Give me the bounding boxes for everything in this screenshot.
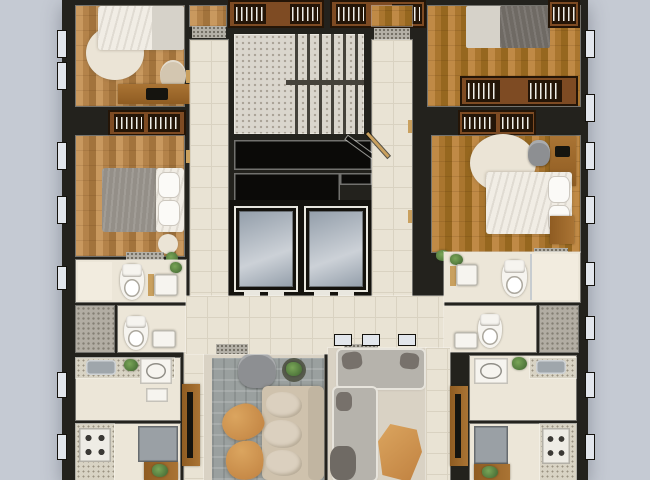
hanger-rail-icon [552, 4, 576, 24]
bed-sheet [466, 6, 502, 48]
corridor-right-vestibule [372, 6, 412, 26]
toilet [120, 264, 144, 300]
stove [542, 428, 570, 464]
hanger-rail-icon [466, 80, 500, 102]
hanger-rail-icon [462, 114, 496, 132]
tv [187, 392, 193, 458]
door-jamb [186, 70, 190, 83]
corridor-right [372, 40, 412, 296]
bed-throw [152, 6, 184, 50]
fridge [138, 426, 178, 462]
window [585, 196, 595, 224]
stair-void [234, 173, 340, 202]
vanity-sink [154, 274, 178, 296]
pillow [336, 392, 352, 411]
hanger-rail-icon [500, 114, 533, 132]
apartment-corridor-right [426, 348, 450, 480]
pillow [548, 176, 570, 203]
plant [152, 464, 168, 477]
window [585, 94, 595, 122]
toilet [502, 260, 527, 297]
bed-blanket [102, 168, 158, 232]
window [57, 266, 67, 290]
service-shaft [540, 306, 578, 352]
steel-sink [536, 360, 566, 374]
window [57, 30, 67, 58]
appliance [146, 388, 168, 402]
pillow [158, 172, 180, 198]
window [57, 434, 67, 460]
shower-area [78, 262, 112, 300]
stair-flight-upper [286, 34, 364, 80]
elevator-car [239, 211, 293, 287]
door-jamb [408, 210, 412, 223]
desk-chair [528, 140, 550, 166]
window [585, 142, 595, 170]
plant [170, 262, 182, 273]
bed-blanket [500, 6, 550, 48]
stair-void-step [340, 173, 372, 185]
vanity-sink [454, 332, 478, 349]
shower-glass [530, 254, 532, 300]
vanity-sink [456, 264, 478, 286]
washer [140, 358, 172, 384]
hanger-rail-icon [336, 4, 366, 24]
window [57, 142, 67, 170]
door-jamb [186, 150, 190, 163]
stair-void [234, 140, 372, 170]
vanity-sink [152, 330, 176, 348]
hanger-rail-icon [290, 4, 320, 24]
sofa-backrest [308, 386, 324, 480]
floor-plan-render [0, 0, 650, 480]
plant [124, 359, 138, 371]
service-shaft [76, 306, 114, 352]
window [585, 316, 595, 340]
door-mat [374, 28, 410, 40]
washer [474, 358, 508, 384]
plant [286, 362, 302, 376]
window [57, 62, 67, 90]
sofa-cushion [266, 450, 302, 476]
door-jamb [408, 120, 412, 133]
hanger-rail-icon [234, 4, 266, 24]
bedroom-top-left-vestibule-floor [190, 6, 226, 26]
lounge-chair [330, 446, 356, 480]
armchair [238, 352, 276, 388]
pillow [399, 352, 420, 370]
steel-sink [86, 360, 116, 375]
elevator-car [309, 211, 363, 287]
window [57, 196, 67, 224]
window [585, 434, 595, 460]
window [334, 334, 352, 346]
plant [482, 466, 498, 478]
stove [79, 428, 111, 462]
sofa-cushion [264, 420, 302, 448]
toilet [124, 316, 148, 350]
hanger-rail-icon [114, 114, 144, 132]
plant [512, 357, 527, 370]
elevator-left [234, 206, 298, 292]
corridor-left [190, 40, 228, 296]
shower-area [532, 254, 578, 300]
pillow [158, 200, 180, 226]
fridge [474, 426, 508, 464]
stair-flight-lower [286, 85, 358, 134]
hanger-rail-icon [148, 114, 180, 132]
window [362, 334, 380, 346]
sofa-cushion [266, 392, 302, 418]
door-mat [216, 344, 248, 354]
elevator-right [304, 206, 368, 292]
window [398, 334, 416, 346]
tv [455, 394, 461, 458]
stool [158, 234, 178, 254]
window [57, 372, 67, 398]
hanger-rail-icon [528, 80, 562, 102]
nightstand [550, 216, 574, 244]
window [585, 262, 595, 286]
toilet [478, 314, 502, 348]
window [585, 30, 595, 58]
door-mat [192, 26, 226, 38]
laptop [146, 88, 168, 100]
laptop [555, 146, 570, 157]
window [585, 372, 595, 398]
